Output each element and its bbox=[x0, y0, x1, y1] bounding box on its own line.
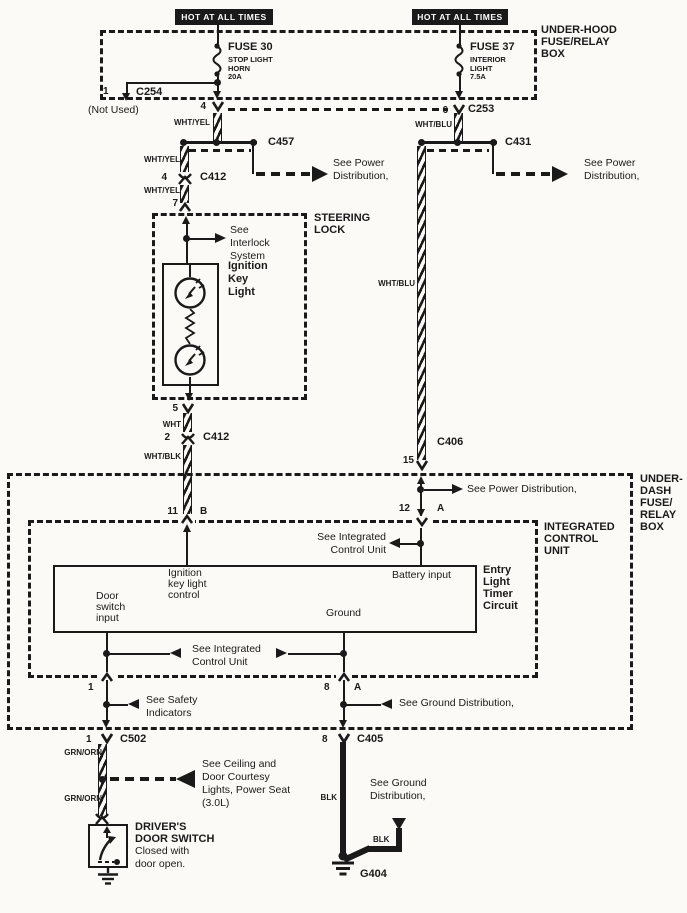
c457-junction-bar bbox=[183, 141, 257, 144]
connector-chevron-icon bbox=[414, 459, 430, 471]
wire-internal bbox=[186, 222, 188, 264]
pin6-label: 6 bbox=[434, 105, 448, 116]
connector-chevron-icon bbox=[99, 732, 115, 744]
c254-label: C254 bbox=[136, 86, 162, 98]
icu-exit-pin1: 1 bbox=[88, 682, 94, 693]
pin4-label: 4 bbox=[192, 101, 206, 112]
wiring-diagram: HOT AT ALL TIMES HOT AT ALL TIMES UNDER-… bbox=[0, 0, 687, 913]
wire-wht bbox=[183, 413, 192, 432]
wire-color-label: WHT/BLU bbox=[402, 120, 452, 129]
wire-fuse37-top bbox=[459, 25, 461, 45]
wire-wht-yel bbox=[180, 185, 189, 203]
ecu-pin-battery-label: Battery input bbox=[392, 569, 451, 582]
c405-pin: 8 bbox=[322, 734, 328, 745]
wire-color-label: WHT/BLK bbox=[134, 452, 181, 461]
c412b-label: C412 bbox=[203, 431, 229, 443]
wire-branch bbox=[288, 653, 342, 655]
c431-dashed-line bbox=[427, 149, 489, 152]
pin5-label: 5 bbox=[164, 403, 178, 414]
see-power-distribution-text: See Power Distribution, bbox=[584, 157, 639, 182]
see-safety-indicators-text: See Safety Indicators bbox=[146, 694, 197, 719]
icu-exit-pin8: 8 bbox=[324, 682, 330, 693]
junction-dot bbox=[454, 139, 461, 146]
under-dash-box-label: UNDER- DASH FUSE/ RELAY BOX bbox=[640, 473, 683, 533]
wire-color-label: WHT/BLU bbox=[370, 279, 415, 288]
inline-connector-icon bbox=[180, 431, 196, 445]
bulb-icon bbox=[173, 343, 207, 377]
arrow-down-icon bbox=[102, 720, 110, 728]
filament-zigzag-icon bbox=[184, 309, 196, 344]
see-icu-text: See Integrated Control Unit bbox=[300, 531, 386, 556]
ignition-key-light-label: Ignition Key Light bbox=[228, 260, 268, 299]
fuse-icon bbox=[210, 43, 224, 77]
wire-fuse30-top bbox=[217, 25, 219, 45]
ecu-pin-ignition-label: Ignition key light control bbox=[168, 568, 207, 601]
pin11-label: 11 bbox=[160, 506, 178, 517]
terminal-a-label: A bbox=[437, 503, 444, 514]
c405-label: C405 bbox=[357, 733, 383, 745]
c457-label: C457 bbox=[268, 136, 294, 148]
arrow-left-icon bbox=[381, 699, 392, 709]
pin15-label: 15 bbox=[396, 455, 414, 466]
see-ceiling-text: See Ceiling and Door Courtesy Lights, Po… bbox=[202, 758, 290, 810]
hot-at-all-times-banner-right: HOT AT ALL TIMES bbox=[412, 9, 508, 25]
wire-branch bbox=[345, 704, 381, 706]
bulb-icon bbox=[173, 276, 207, 310]
see-icu-bottom-text: See Integrated Control Unit bbox=[192, 643, 261, 668]
arrow-right-icon bbox=[552, 166, 568, 182]
ecu-pin-ground-label: Ground bbox=[326, 607, 361, 620]
arrow-down-icon bbox=[455, 91, 463, 99]
see-ground-distribution-text: See Ground Distribution, bbox=[399, 697, 514, 710]
wire-color-label: BLK bbox=[373, 835, 389, 844]
not-used-note: (Not Used) bbox=[88, 104, 139, 117]
see-power-dashed-arrow bbox=[256, 172, 312, 176]
see-interlock-text: See Interlock System bbox=[230, 224, 270, 263]
fuse30-desc: STOP LIGHT HORN 20A bbox=[228, 56, 273, 82]
c412-pin: 4 bbox=[153, 172, 167, 183]
arrow-down-icon bbox=[122, 93, 130, 101]
ground-icon bbox=[95, 868, 121, 886]
junction-dot bbox=[99, 776, 106, 783]
c457-dashed-line bbox=[189, 149, 251, 152]
wire-fuse37-bottom bbox=[459, 76, 461, 92]
connector-chevron-icon bbox=[177, 202, 193, 213]
c431-label: C431 bbox=[505, 136, 531, 148]
c253-link-dashed bbox=[228, 108, 448, 111]
wire-c254-branch bbox=[126, 82, 218, 84]
see-power-dashed-arrow bbox=[496, 172, 552, 176]
terminal-b-label: B bbox=[200, 506, 207, 517]
wire-wht-blk bbox=[183, 476, 192, 518]
arrow-down-icon bbox=[213, 91, 221, 99]
wire-elbow bbox=[252, 144, 254, 174]
wire-color-label: WHT/YEL bbox=[160, 118, 210, 127]
see-power-distribution-text: See Power Distribution, bbox=[467, 483, 577, 496]
door-switch-icon bbox=[90, 826, 126, 866]
junction-dot bbox=[213, 139, 220, 146]
g404-label: G404 bbox=[360, 868, 387, 880]
arrow-left-icon bbox=[176, 770, 195, 788]
wire-color-label: GRN/ORN bbox=[57, 748, 102, 757]
wire-color-label: GRN/ORN bbox=[57, 794, 102, 803]
steering-lock-label: STEERING LOCK bbox=[314, 212, 370, 236]
fuse37-name: FUSE 37 bbox=[470, 41, 515, 53]
wire-color-label: WHT bbox=[150, 420, 181, 429]
c406-label: C406 bbox=[437, 436, 463, 448]
c253-label: C253 bbox=[468, 103, 494, 115]
c502-label: C502 bbox=[120, 733, 146, 745]
wire-branch bbox=[108, 704, 128, 706]
icu-label: INTEGRATED CONTROL UNIT bbox=[544, 521, 615, 557]
drivers-door-switch-label: DRIVER'S DOOR SWITCH Closed with door op… bbox=[135, 821, 214, 870]
arrow-left-icon bbox=[389, 538, 400, 548]
pin7-label: 7 bbox=[164, 198, 178, 209]
connector-chevron-icon bbox=[210, 100, 226, 112]
arrow-right-icon bbox=[276, 648, 287, 658]
wire-wht-blu-main bbox=[417, 146, 426, 460]
c502-pin: 1 bbox=[86, 734, 92, 745]
hot-at-all-times-banner-left: HOT AT ALL TIMES bbox=[175, 9, 273, 25]
arrow-down-icon bbox=[339, 720, 347, 728]
junction-dot bbox=[180, 139, 187, 146]
g404-ground-icon bbox=[329, 852, 359, 878]
connector-chevron-icon bbox=[414, 516, 430, 527]
entry-light-timer-label: Entry Light Timer Circuit bbox=[483, 564, 518, 612]
fuse37-desc: INTERIOR LIGHT 7.5A bbox=[470, 56, 506, 82]
junction-dot bbox=[417, 540, 424, 547]
wire-branch bbox=[400, 543, 418, 545]
c412-label: C412 bbox=[200, 171, 226, 183]
wire-blk-main bbox=[340, 742, 346, 858]
c254-pin: 1 bbox=[103, 86, 109, 97]
arrow-right-icon bbox=[215, 233, 226, 243]
fuse30-name: FUSE 30 bbox=[228, 41, 273, 53]
wire-interlock-branch bbox=[188, 238, 215, 240]
wire-wht-blk bbox=[183, 445, 192, 476]
c412b-pin: 2 bbox=[156, 432, 170, 443]
inline-connector-icon bbox=[177, 171, 193, 185]
fuse-icon bbox=[452, 43, 466, 77]
see-ceiling-dashed-arrow bbox=[110, 777, 176, 781]
wire-elbow bbox=[492, 144, 494, 174]
ecu-pin-door-label: Door switch input bbox=[96, 591, 125, 624]
wire-internal bbox=[189, 377, 191, 386]
junction-dot bbox=[417, 486, 424, 493]
wire-color-label: WHT/YEL bbox=[130, 155, 180, 164]
arrow-left-icon bbox=[170, 648, 181, 658]
arrow-right-icon bbox=[452, 484, 463, 494]
pin12-label: 12 bbox=[392, 503, 410, 514]
see-ground-distribution-text: See Ground Distribution, bbox=[370, 777, 427, 802]
wire-wht-yel bbox=[180, 146, 189, 172]
see-power-distribution-text: See Power Distribution, bbox=[333, 157, 388, 182]
wire-color-label: BLK bbox=[315, 793, 337, 802]
under-hood-box-label: UNDER-HOOD FUSE/RELAY BOX bbox=[541, 24, 617, 60]
arrow-left-icon bbox=[128, 699, 139, 709]
wire-internal bbox=[186, 531, 188, 565]
arrow-down-icon bbox=[185, 393, 193, 401]
junction-dot bbox=[418, 139, 425, 146]
wire-branch bbox=[108, 653, 170, 655]
arrow-right-icon bbox=[312, 166, 328, 182]
wire-color-label: WHT/YEL bbox=[130, 186, 180, 195]
wire-branch bbox=[424, 489, 452, 491]
terminal-a-label: A bbox=[354, 682, 361, 693]
